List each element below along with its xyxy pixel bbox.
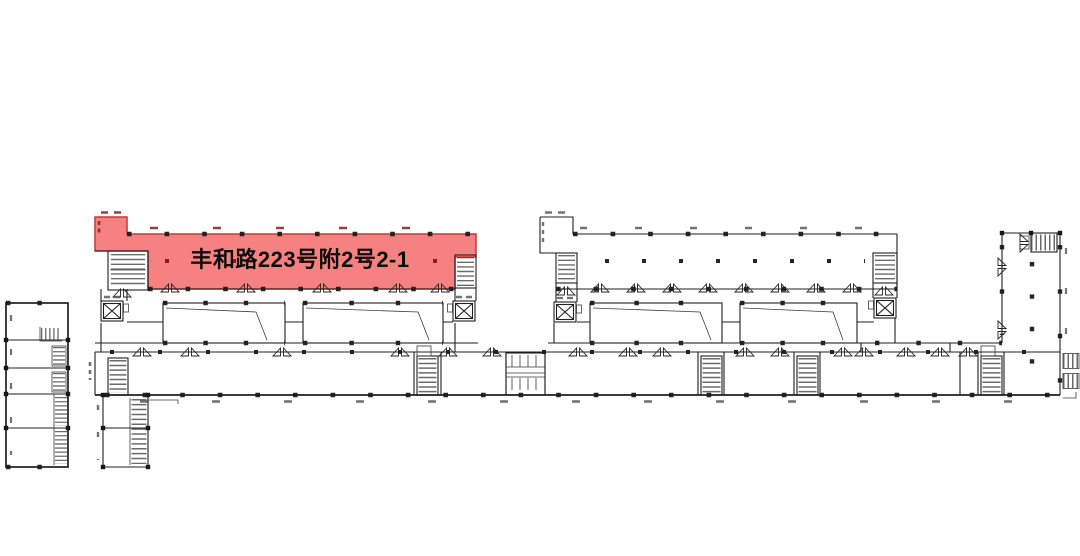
floor-plan-viewport: 丰和路223号附2号2-1 xyxy=(0,0,1080,556)
unit-label: 丰和路223号附2号2-1 xyxy=(160,242,440,274)
floor-plan-canvas xyxy=(0,0,1080,556)
